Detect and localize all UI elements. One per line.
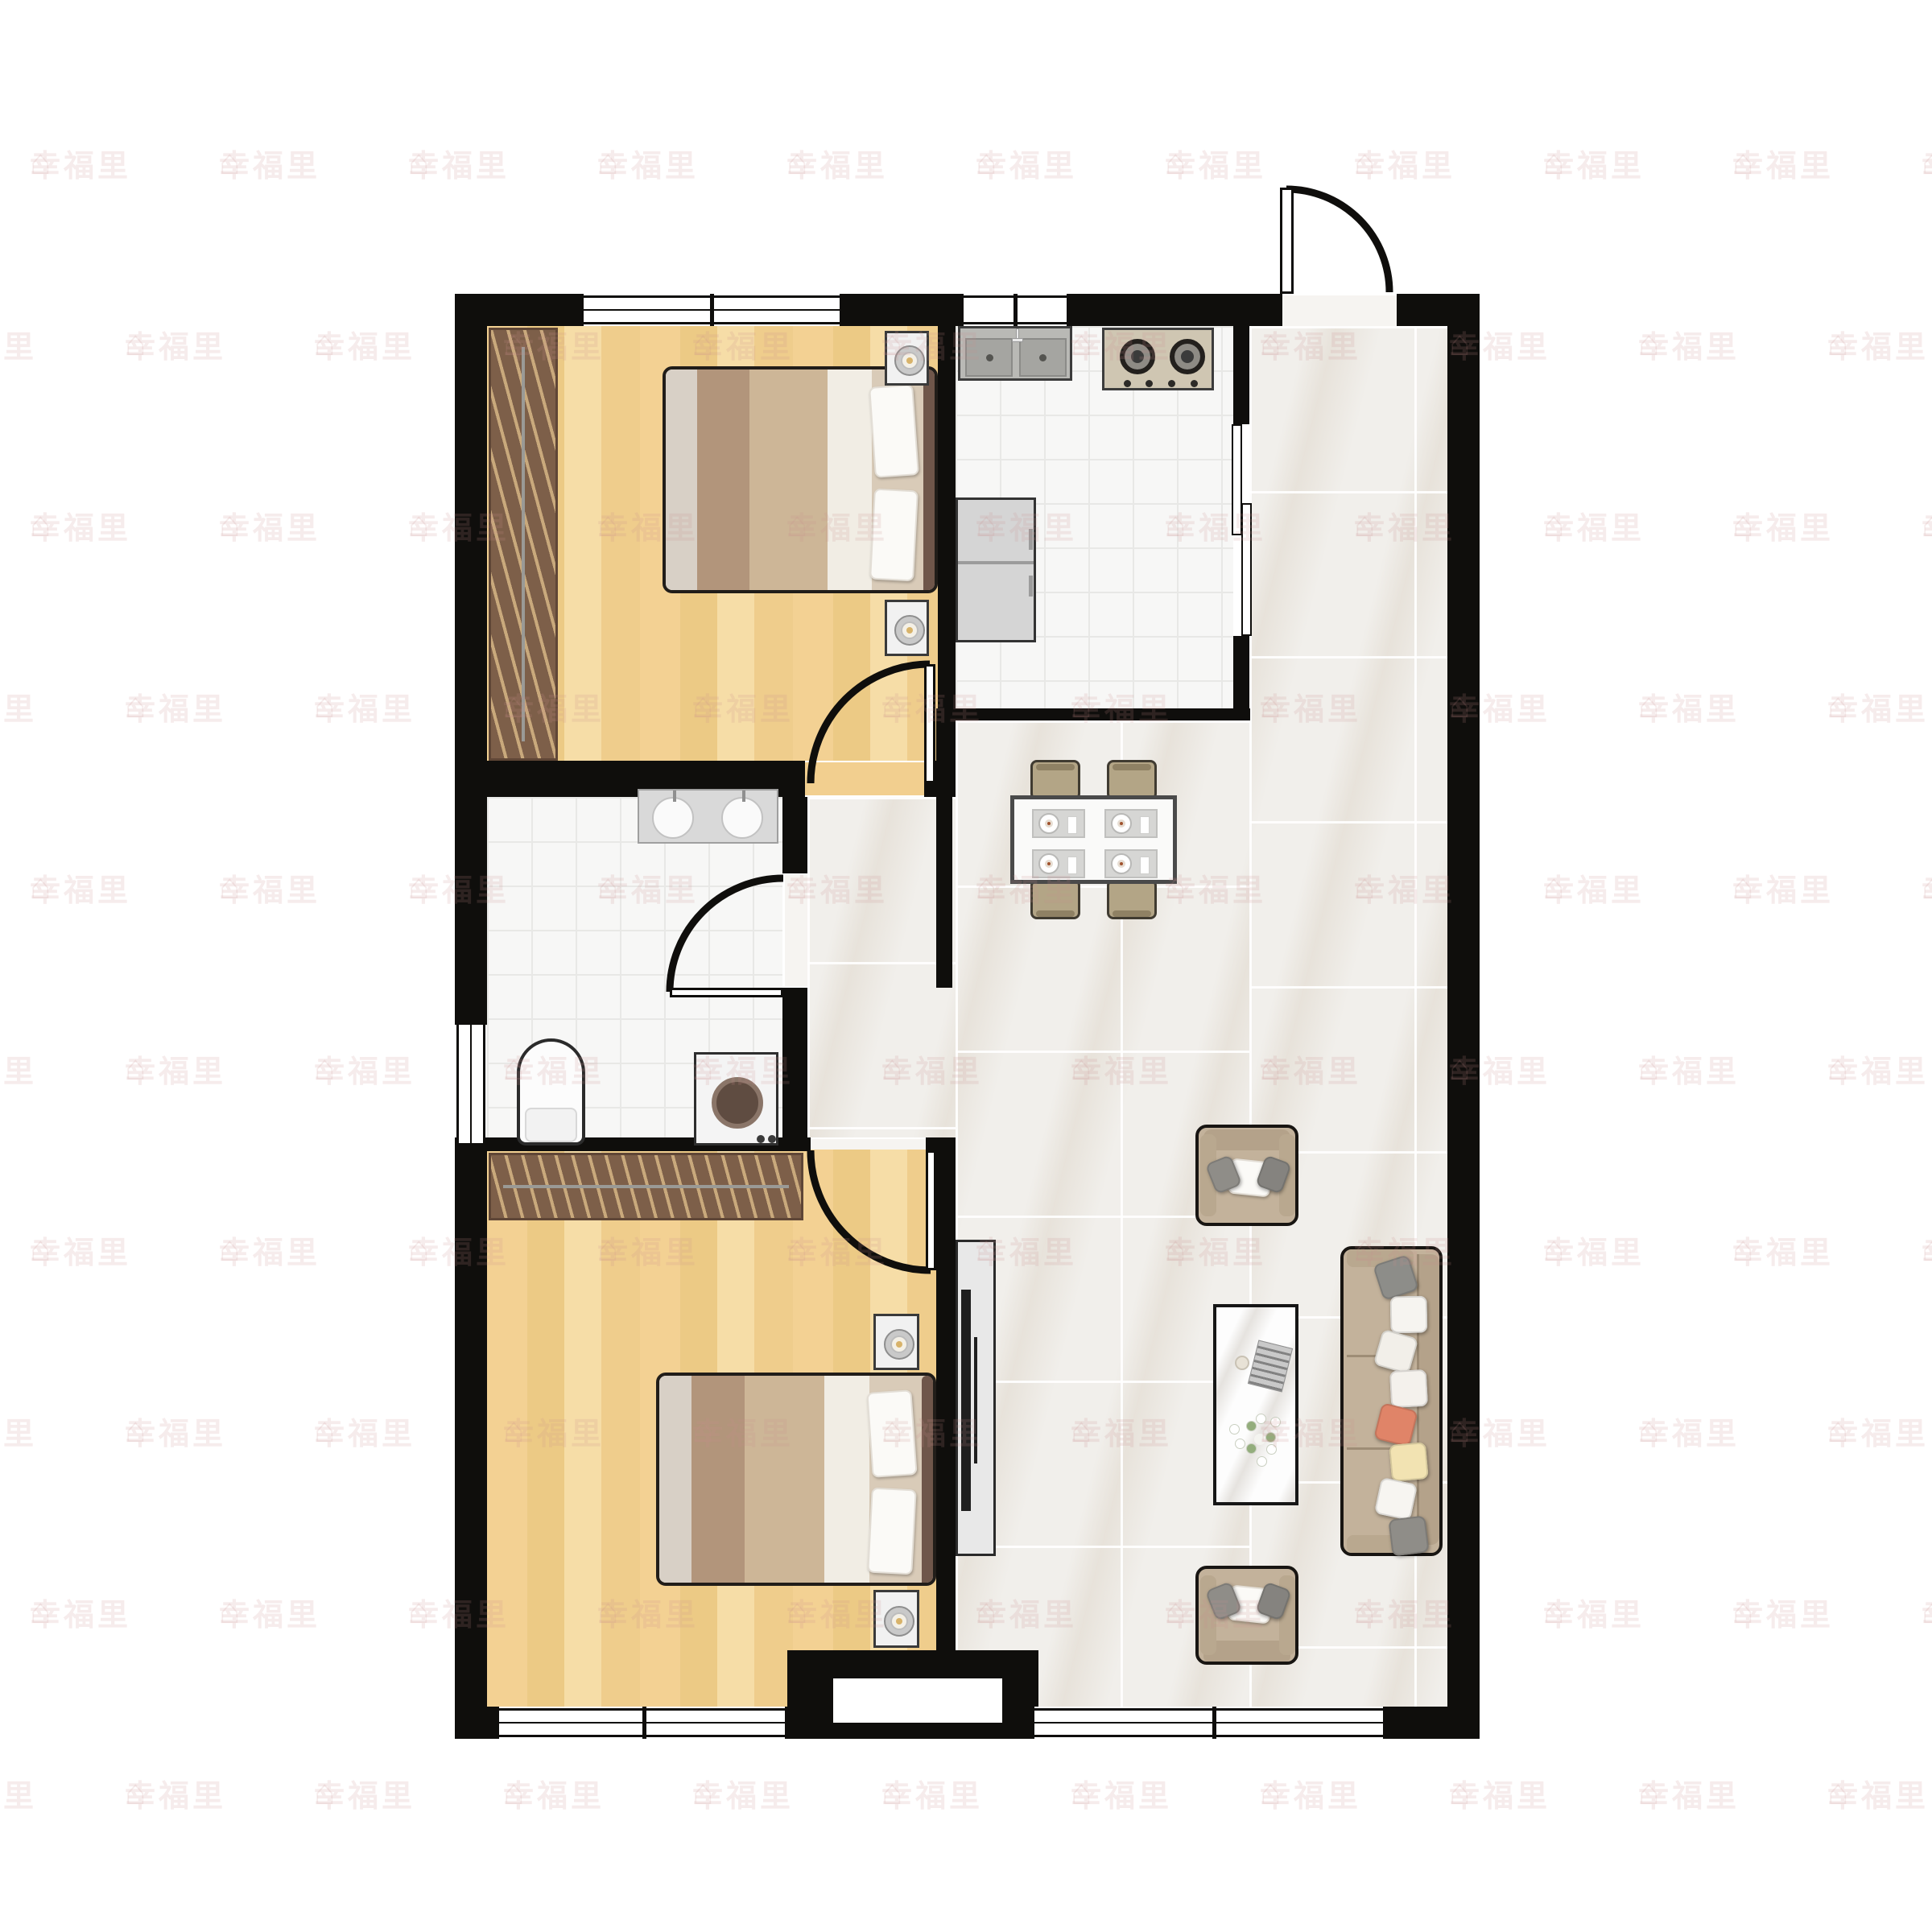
bed-pillow xyxy=(869,384,919,477)
dining-chair xyxy=(1030,760,1080,800)
watermark-text: 幸福里 xyxy=(1543,141,1645,185)
watermark-house-icon: ⌂ xyxy=(219,142,244,183)
bed-headboard xyxy=(922,1376,936,1586)
wall-right xyxy=(1447,294,1480,1739)
watermark-text: 幸福里 xyxy=(30,865,131,910)
wall-bath-right-lower xyxy=(782,988,807,1137)
entry-threshold xyxy=(1282,295,1397,326)
watermark-text: 幸福里 xyxy=(1922,1228,1932,1272)
flower-bouquet xyxy=(1266,1444,1277,1455)
watermark-house-icon: ⌂ xyxy=(314,1773,339,1813)
watermark-house-icon: ⌂ xyxy=(314,324,339,364)
bedroom-1-door-leaf xyxy=(924,664,935,783)
watermark-text: 幸福里 xyxy=(1449,1771,1550,1815)
watermark-text: 幸福里 xyxy=(1543,1228,1645,1272)
bed-blanket xyxy=(745,1376,824,1586)
watermark-house-icon: ⌂ xyxy=(125,0,150,2)
watermark-house-icon: ⌂ xyxy=(1165,142,1190,183)
watermark-house-icon: ⌂ xyxy=(976,142,1001,183)
watermark-house-icon: ⌂ xyxy=(1732,1591,1757,1632)
watermark-house-icon: ⌂ xyxy=(125,686,150,726)
watermark-text: 幸福里 xyxy=(1732,1590,1834,1634)
sofa-pillow xyxy=(1389,1442,1429,1482)
bed-blanket xyxy=(749,369,828,593)
watermark-text: 幸福里 xyxy=(314,1771,415,1815)
watermark-house-icon: ⌂ xyxy=(1827,1410,1852,1451)
watermark-house-icon: ⌂ xyxy=(1638,324,1663,364)
kitchen-window-mullion-0 xyxy=(1013,294,1018,326)
watermark-text: 幸福里 xyxy=(0,1771,37,1815)
wall-hall-stub xyxy=(936,719,952,988)
place-mat xyxy=(1032,809,1085,838)
stove-knob xyxy=(1146,380,1153,387)
watermark-text: 幸福里 xyxy=(692,1771,794,1815)
watermark-text: 幸福里 xyxy=(1260,0,1361,4)
watermark-text: 幸福里 xyxy=(1732,865,1834,910)
watermark-house-icon: ⌂ xyxy=(1827,324,1852,364)
watermark-house-icon: ⌂ xyxy=(125,324,150,364)
watermark-text: 幸福里 xyxy=(692,0,794,4)
wardrobe-rail xyxy=(522,347,525,741)
flower-bouquet xyxy=(1265,1432,1276,1443)
wall-kitchen-right-up xyxy=(1233,326,1249,424)
wall-bottom-c xyxy=(1383,1707,1480,1739)
watermark-text: 幸福里 xyxy=(881,1771,983,1815)
place-mat xyxy=(1032,849,1085,878)
watermark-text: 幸福里 xyxy=(1638,0,1740,4)
watermark-text: 幸福里 xyxy=(219,1590,320,1634)
watermark-text: 幸福里 xyxy=(125,322,226,366)
watermark-house-icon: ⌂ xyxy=(1543,867,1568,907)
watermark-text: 幸福里 xyxy=(1922,1590,1932,1634)
bed-blanket-dark xyxy=(691,1376,745,1586)
entry-door-leaf xyxy=(1280,188,1294,294)
living-window-glass-line xyxy=(1034,1722,1383,1724)
tv-screen xyxy=(961,1290,971,1511)
watermark-house-icon: ⌂ xyxy=(1827,1048,1852,1088)
wall-bath-right-upper xyxy=(782,797,807,873)
watermark-house-icon: ⌂ xyxy=(1354,142,1379,183)
watermark-house-icon: ⌂ xyxy=(219,1591,244,1632)
magazine xyxy=(1247,1340,1292,1393)
watermark-text: 幸福里 xyxy=(503,1771,605,1815)
watermark-house-icon: ⌂ xyxy=(1071,0,1096,2)
kitchen-fridge xyxy=(956,497,1036,642)
watermark-text: 幸福里 xyxy=(314,1409,415,1453)
watermark-text: 幸福里 xyxy=(1071,0,1172,4)
bedroom-1-bed xyxy=(663,366,938,593)
flower-bouquet xyxy=(1246,1443,1257,1454)
watermark-house-icon: ⌂ xyxy=(1732,1229,1757,1269)
watermark-house-icon: ⌂ xyxy=(408,505,433,545)
watermark-house-icon: ⌂ xyxy=(125,1773,150,1813)
dining-chair-back xyxy=(1036,764,1075,770)
watermark-text: 幸福里 xyxy=(1638,1046,1740,1091)
watermark-text: 幸福里 xyxy=(219,503,320,547)
watermark-house-icon: ⌂ xyxy=(219,867,244,907)
watermark-text: 幸福里 xyxy=(314,684,415,729)
bed-sheet-white xyxy=(824,1376,869,1586)
watermark-house-icon: ⌂ xyxy=(1543,142,1568,183)
sofa-pillow xyxy=(1389,1515,1430,1556)
vanity-faucet-icon xyxy=(673,791,676,802)
plate xyxy=(1111,853,1132,874)
wall-bed2-right xyxy=(936,1137,956,1707)
table-lamp-icon xyxy=(906,357,913,364)
bedroom-2-nightstand-bottom xyxy=(873,1590,919,1648)
plate xyxy=(1111,813,1132,834)
stove-knob xyxy=(1191,380,1198,387)
bedroom-2-window-mullion-0 xyxy=(642,1707,646,1739)
watermark-text: 幸福里 xyxy=(1922,865,1932,910)
watermark-text: 幸福里 xyxy=(314,0,415,4)
dining-table xyxy=(1010,795,1177,884)
living-window xyxy=(1034,1708,1383,1737)
watermark-text: 幸福里 xyxy=(1922,503,1932,547)
watermark-house-icon: ⌂ xyxy=(1922,1591,1932,1632)
watermark-house-icon: ⌂ xyxy=(408,1229,433,1269)
vanity-sink-right xyxy=(721,797,763,839)
wall-top-b xyxy=(840,294,964,326)
watermark-text: 幸福里 xyxy=(1260,1771,1361,1815)
watermark-house-icon: ⌂ xyxy=(30,1591,55,1632)
sofa-pillow xyxy=(1389,1368,1428,1407)
plate xyxy=(1038,853,1059,874)
watermark-house-icon: ⌂ xyxy=(1732,142,1757,183)
watermark-house-icon: ⌂ xyxy=(1449,0,1474,2)
floorplan-canvas: ⌂幸福里⌂幸福里⌂幸福里⌂幸福里⌂幸福里⌂幸福里⌂幸福里⌂幸福里⌂幸福里⌂幸福里… xyxy=(0,0,1932,1932)
watermark-text: 幸福里 xyxy=(1827,322,1929,366)
watermark-house-icon: ⌂ xyxy=(1922,142,1932,183)
bed-blanket-dark xyxy=(697,369,749,593)
bathroom-toilet xyxy=(517,1038,585,1146)
watermark-text: 幸福里 xyxy=(786,141,888,185)
watermark-text: 幸福里 xyxy=(1638,322,1740,366)
bedroom-1-wardrobe xyxy=(489,328,558,761)
bed-sheet-band xyxy=(659,1376,691,1586)
fridge-handle xyxy=(1029,576,1033,597)
sink-faucet-icon xyxy=(1012,338,1023,342)
watermark-house-icon: ⌂ xyxy=(30,142,55,183)
bathroom-door-leaf xyxy=(670,988,783,997)
kitchen-sink xyxy=(958,326,1072,381)
bed-headboard xyxy=(923,369,938,593)
watermark-house-icon: ⌂ xyxy=(125,1410,150,1451)
watermark-house-icon: ⌂ xyxy=(1922,867,1932,907)
watermark-house-icon: ⌂ xyxy=(30,1229,55,1269)
watermark-house-icon: ⌂ xyxy=(503,0,528,2)
watermark-house-icon: ⌂ xyxy=(314,1410,339,1451)
watermark-text: 幸福里 xyxy=(219,1228,320,1272)
watermark-house-icon: ⌂ xyxy=(692,0,717,2)
wall-left-upper xyxy=(455,294,487,1025)
entry-door-arc xyxy=(1286,189,1389,292)
wall-left-lower xyxy=(455,1143,487,1739)
sink-drain xyxy=(986,354,993,361)
watermark-text: 幸福里 xyxy=(1071,1771,1172,1815)
dining-chair-back xyxy=(1036,910,1075,917)
watermark-house-icon: ⌂ xyxy=(786,142,811,183)
dining-chair-back xyxy=(1113,764,1151,770)
washer-knob xyxy=(757,1135,765,1143)
coffee-table xyxy=(1213,1304,1298,1505)
stove-knob xyxy=(1168,380,1175,387)
bedroom-2-wardrobe xyxy=(489,1153,803,1220)
washer-knob xyxy=(768,1135,776,1143)
watermark-house-icon: ⌂ xyxy=(30,505,55,545)
watermark-house-icon: ⌂ xyxy=(1638,0,1663,2)
flower-bouquet xyxy=(1235,1439,1245,1449)
wall-bottom-a xyxy=(455,1707,499,1739)
stove-burner-right xyxy=(1170,339,1205,374)
flower-bouquet xyxy=(1246,1421,1257,1431)
watermark-text: 幸福里 xyxy=(30,141,131,185)
stove-burner-left xyxy=(1120,339,1155,374)
watermark-text: 幸福里 xyxy=(30,1590,131,1634)
watermark-house-icon: ⌂ xyxy=(1638,686,1663,726)
stove-knob xyxy=(1124,380,1131,387)
watermark-house-icon: ⌂ xyxy=(1071,1773,1096,1813)
wall-kitchen-right-dn xyxy=(1233,636,1249,720)
armchair-backrest xyxy=(1203,1641,1290,1662)
napkin xyxy=(1067,857,1077,874)
watermark-text: 幸福里 xyxy=(1354,141,1455,185)
watermark-text: 幸福里 xyxy=(503,0,605,4)
place-mat xyxy=(1104,849,1158,878)
watermark-house-icon: ⌂ xyxy=(597,142,622,183)
napkin xyxy=(1067,816,1077,834)
dining-chair xyxy=(1107,760,1157,800)
dining-chair xyxy=(1107,879,1157,919)
armchair-bottom xyxy=(1195,1566,1298,1665)
watermark-text: 幸福里 xyxy=(0,0,37,4)
toilet-tank xyxy=(525,1108,577,1142)
watermark-house-icon: ⌂ xyxy=(408,1591,433,1632)
watermark-house-icon: ⌂ xyxy=(1922,1229,1932,1269)
fridge-handle xyxy=(1029,529,1033,550)
bed-pillow xyxy=(869,489,919,582)
flower-bouquet xyxy=(1254,1434,1265,1445)
watermark-text: 幸福里 xyxy=(30,503,131,547)
bathroom-window xyxy=(456,1025,485,1143)
dining-chair xyxy=(1030,879,1080,919)
living-window-mullion-0 xyxy=(1212,1707,1216,1739)
watermark-house-icon: ⌂ xyxy=(30,867,55,907)
watermark-house-icon: ⌂ xyxy=(408,867,433,907)
armchair-top xyxy=(1195,1125,1298,1226)
watermark-text: 幸福里 xyxy=(1543,865,1645,910)
cup xyxy=(1235,1356,1249,1370)
watermark-house-icon: ⌂ xyxy=(314,1048,339,1088)
watermark-text: 幸福里 xyxy=(1732,503,1834,547)
place-mat xyxy=(1104,809,1158,838)
bedroom-2-bed xyxy=(656,1373,936,1586)
watermark-house-icon: ⌂ xyxy=(1827,1773,1852,1813)
watermark-text: 幸福里 xyxy=(1638,1409,1740,1453)
watermark-house-icon: ⌂ xyxy=(1638,1048,1663,1088)
sofa-pillow xyxy=(1373,1328,1419,1374)
watermark-text: 幸福里 xyxy=(0,1046,37,1091)
bedroom-2-doorway xyxy=(811,1139,926,1150)
sofa-pillow xyxy=(1390,1295,1428,1333)
watermark-text: 幸福里 xyxy=(125,1771,226,1815)
watermark-text: 幸福里 xyxy=(125,684,226,729)
watermark-text: 幸福里 xyxy=(0,684,37,729)
watermark-text: 幸福里 xyxy=(1732,1228,1834,1272)
watermark-house-icon: ⌂ xyxy=(219,1229,244,1269)
watermark-house-icon: ⌂ xyxy=(1732,867,1757,907)
watermark-text: 幸福里 xyxy=(314,1046,415,1091)
watermark-text: 幸福里 xyxy=(125,0,226,4)
bed-pillow xyxy=(867,1488,916,1575)
fridge-door-split xyxy=(958,561,1034,564)
bed-sheet-white xyxy=(828,369,872,593)
bed-sheet-band xyxy=(666,369,697,593)
flower-bouquet xyxy=(1270,1417,1281,1427)
watermark-house-icon: ⌂ xyxy=(1543,505,1568,545)
watermark-text: 幸福里 xyxy=(1827,0,1929,4)
watermark-text: 幸福里 xyxy=(1449,0,1550,4)
watermark-house-icon: ⌂ xyxy=(1260,1773,1285,1813)
watermark-house-icon: ⌂ xyxy=(881,0,906,2)
plate-food xyxy=(1045,819,1053,828)
bathroom-vanity xyxy=(638,789,778,844)
watermark-text: 幸福里 xyxy=(1165,141,1266,185)
watermark-text: 幸福里 xyxy=(1543,503,1645,547)
watermark-text: 幸福里 xyxy=(219,141,320,185)
washer-drum-icon xyxy=(712,1077,763,1129)
watermark-text: 幸福里 xyxy=(125,1046,226,1091)
watermark-text: 幸福里 xyxy=(1827,1046,1929,1091)
bedroom-1-window-mullion-0 xyxy=(710,294,714,326)
plate-food xyxy=(1117,860,1125,868)
bathroom-doorway xyxy=(785,875,807,986)
bedroom-1-nightstand-top xyxy=(885,331,929,386)
napkin xyxy=(1140,816,1150,834)
watermark-text: 幸福里 xyxy=(30,1228,131,1272)
watermark-text: 幸福里 xyxy=(0,1409,37,1453)
watermark-house-icon: ⌂ xyxy=(1638,1410,1663,1451)
bedroom-1-doorway xyxy=(805,762,924,795)
watermark-text: 幸福里 xyxy=(219,865,320,910)
watermark-text: 幸福里 xyxy=(1638,1771,1740,1815)
watermark-house-icon: ⌂ xyxy=(881,1773,906,1813)
watermark-text: 幸福里 xyxy=(881,0,983,4)
wardrobe-rail xyxy=(503,1185,788,1188)
watermark-house-icon: ⌂ xyxy=(1260,0,1285,2)
watermark-house-icon: ⌂ xyxy=(125,1048,150,1088)
watermark-house-icon: ⌂ xyxy=(1449,1773,1474,1813)
plate xyxy=(1038,813,1059,834)
watermark-text: 幸福里 xyxy=(314,322,415,366)
bedroom-1-nightstand-bottom xyxy=(885,600,929,656)
tv-stand xyxy=(956,1240,996,1556)
watermark-text: 幸福里 xyxy=(408,141,510,185)
watermark-house-icon: ⌂ xyxy=(314,0,339,2)
table-lamp-icon xyxy=(906,627,913,634)
watermark-house-icon: ⌂ xyxy=(1827,686,1852,726)
bathroom-washer xyxy=(694,1052,778,1146)
watermark-house-icon: ⌂ xyxy=(692,1773,717,1813)
vanity-faucet-icon xyxy=(742,791,745,802)
kitchen-stove xyxy=(1102,328,1214,390)
watermark-text: 幸福里 xyxy=(1827,684,1929,729)
wall-top-c xyxy=(1067,294,1282,326)
dining-chair-back xyxy=(1113,910,1151,917)
watermark-text: 幸福里 xyxy=(597,141,699,185)
watermark-house-icon: ⌂ xyxy=(1543,1229,1568,1269)
flower-bouquet xyxy=(1229,1424,1240,1435)
sofa xyxy=(1340,1246,1443,1556)
bed-pillow xyxy=(866,1389,917,1478)
bathroom-window-glass-line xyxy=(470,1025,472,1143)
hall-floor xyxy=(807,797,956,1137)
watermark-text: 幸福里 xyxy=(976,141,1077,185)
watermark-house-icon: ⌂ xyxy=(1543,1591,1568,1632)
wall-kitchen-bottom xyxy=(936,708,1250,720)
table-lamp-icon xyxy=(896,1618,902,1624)
sofa-pillow xyxy=(1373,1403,1418,1448)
napkin xyxy=(1140,857,1150,874)
watermark-house-icon: ⌂ xyxy=(1732,505,1757,545)
tv-soundbar xyxy=(974,1337,977,1463)
watermark-text: 幸福里 xyxy=(0,322,37,366)
plate-food xyxy=(1117,819,1125,828)
bedroom-2-door-leaf xyxy=(926,1150,936,1270)
recess-void xyxy=(833,1678,1002,1723)
table-lamp-icon xyxy=(896,1341,902,1348)
watermark-house-icon: ⌂ xyxy=(1922,505,1932,545)
watermark-text: 幸福里 xyxy=(1827,1771,1929,1815)
bedroom-2-nightstand-top xyxy=(873,1314,919,1370)
watermark-text: 幸福里 xyxy=(1922,141,1932,185)
plate-food xyxy=(1045,860,1053,868)
watermark-text: 幸福里 xyxy=(1732,141,1834,185)
wall-top-a xyxy=(455,294,584,326)
dining-set xyxy=(1010,760,1177,919)
kitchen-sliding-panel-b xyxy=(1241,503,1252,636)
watermark-house-icon: ⌂ xyxy=(219,505,244,545)
sofa-pillow xyxy=(1374,1477,1418,1521)
flower-bouquet xyxy=(1257,1456,1267,1467)
watermark-house-icon: ⌂ xyxy=(408,142,433,183)
watermark-house-icon: ⌂ xyxy=(503,1773,528,1813)
vanity-sink-left xyxy=(652,797,694,839)
watermark-house-icon: ⌂ xyxy=(1827,0,1852,2)
watermark-house-icon: ⌂ xyxy=(314,686,339,726)
watermark-text: 幸福里 xyxy=(125,1409,226,1453)
watermark-text: 幸福里 xyxy=(1638,684,1740,729)
watermark-house-icon: ⌂ xyxy=(1638,1773,1663,1813)
flower-bouquet xyxy=(1256,1414,1266,1424)
armchair-backrest xyxy=(1203,1129,1290,1150)
watermark-text: 幸福里 xyxy=(1827,1409,1929,1453)
watermark-text: 幸福里 xyxy=(1543,1590,1645,1634)
